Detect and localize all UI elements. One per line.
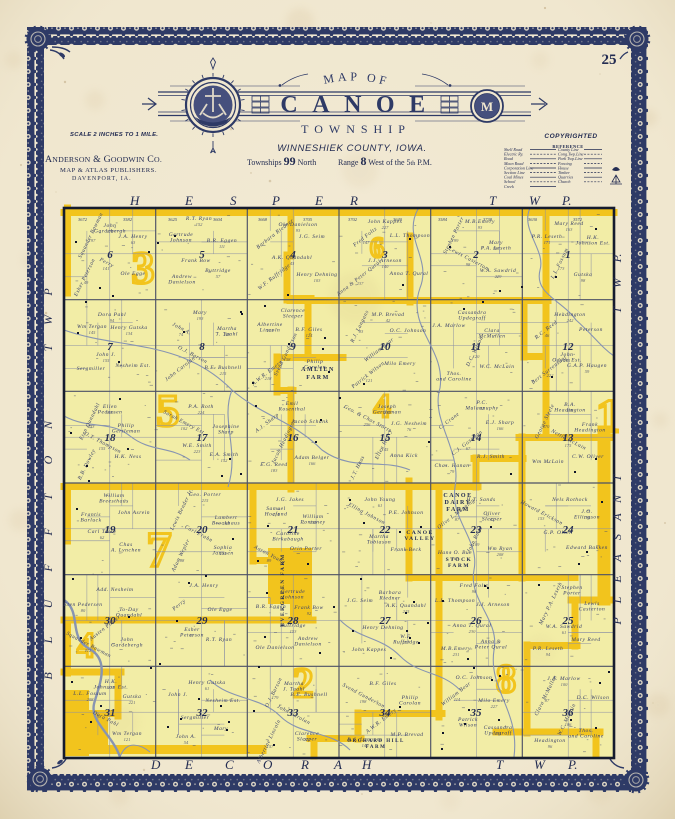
svg-text:141: 141 [103,266,110,271]
svg-text:E: E [610,575,624,584]
svg-text:Wm Ryan: Wm Ryan [488,546,513,552]
svg-text:Hans O. Bue: Hans O. Bue [437,550,472,556]
svg-text:P.E. Johnson: P.E. Johnson [387,510,423,516]
svg-text:43: 43 [290,261,295,266]
svg-text:80: 80 [81,608,86,613]
svg-text:O: O [263,757,273,772]
svg-text:L: L [41,636,55,644]
svg-text:ANDERSON & GOODWIN CO.: ANDERSON & GOODWIN CO. [45,154,162,165]
svg-text:B.E. Bushnell: B.E. Bushnell [204,365,241,371]
svg-text:49: 49 [84,280,89,285]
svg-text:166: 166 [497,426,505,431]
svg-text:Jacob Schank: Jacob Schank [292,419,329,425]
svg-text:179: 179 [272,695,280,700]
svg-text:S: S [610,534,624,540]
svg-text:102: 102 [181,426,189,431]
svg-text:152: 152 [221,458,229,463]
svg-text:Ole Egge: Ole Egge [120,271,145,277]
svg-text:G.A.P. Haugen: G.A.P. Haugen [567,363,607,369]
svg-text:61: 61 [205,686,210,691]
svg-text:Frank Bow: Frank Bow [293,605,324,611]
svg-text:W: W [610,277,624,288]
svg-text:Peterson: Peterson [578,327,603,333]
svg-text:Chas. Hanan: Chas. Hanan [434,463,469,469]
svg-text:L: L [610,596,624,604]
svg-text:203: 203 [267,328,275,333]
svg-text:S: S [230,193,237,208]
svg-text:218: 218 [265,376,273,381]
svg-text:SCALE 2 INCHES TO 1 MILE.: SCALE 2 INCHES TO 1 MILE. [70,132,158,138]
svg-text:Wm Tergan: Wm Tergan [77,324,107,330]
svg-text:A.K. Quandahl: A.K. Quandahl [385,603,426,609]
svg-text:3: 3 [132,242,155,293]
svg-text:175: 175 [565,443,573,448]
svg-text:79: 79 [450,469,455,474]
svg-text:W: W [41,314,55,325]
svg-text:230: 230 [469,629,477,634]
svg-text:136: 136 [584,515,592,520]
svg-text:221: 221 [129,700,136,705]
svg-text:103: 103 [314,278,322,283]
svg-text:O.C. Johnson: O.C. Johnson [456,675,493,681]
svg-text:Anna T. Qural: Anna T. Qural [389,271,429,277]
svg-text:111: 111 [219,244,225,249]
svg-text:CANOE: CANOE [443,493,472,499]
svg-text:U: U [41,598,55,608]
svg-text:8: 8 [496,656,516,701]
svg-text:214: 214 [273,512,281,517]
svg-text:231: 231 [453,652,460,657]
svg-text:89: 89 [267,558,272,563]
svg-text:Buttridge: Buttridge [205,268,231,274]
svg-text:227: 227 [382,225,390,230]
svg-text:John J.: John J. [96,352,116,358]
svg-text:G.P. Olsen: G.P. Olsen [543,530,572,536]
svg-text:223: 223 [194,449,202,454]
svg-text:173: 173 [558,266,566,271]
svg-text:CassandraUpdegraff: CassandraUpdegraff [458,310,487,322]
svg-text:29: 29 [196,615,209,627]
svg-text:215: 215 [202,498,210,503]
svg-text:193: 193 [197,316,205,321]
svg-text:D.C. Wilson: D.C. Wilson [576,695,610,701]
svg-text:WilliamBreesthaus: WilliamBreesthaus [99,493,129,505]
svg-text:228: 228 [224,332,232,337]
svg-text:VALLEY: VALLEY [404,536,435,542]
svg-text:57: 57 [216,274,221,279]
svg-text:T: T [496,757,504,772]
svg-text:WINNESHIEK COUNTY, IOWA.: WINNESHIEK COUNTY, IOWA. [277,143,427,154]
svg-text:P: P [271,193,280,208]
svg-text:Geo. Porter: Geo. Porter [189,492,222,498]
svg-text:P: P [41,288,55,297]
svg-text:54: 54 [184,740,189,745]
svg-text:198: 198 [567,408,575,413]
svg-text:Ole Danielson: Ole Danielson [255,645,294,651]
svg-text:153: 153 [290,629,298,634]
svg-text:CANOE: CANOE [280,92,439,118]
svg-text:Dora Pahl: Dora Pahl [97,312,126,318]
svg-text:62: 62 [100,535,105,540]
svg-text:199: 199 [452,238,460,243]
svg-text:C: C [225,757,234,772]
svg-text:M: M [481,99,493,114]
svg-text:121: 121 [366,378,373,383]
svg-text:Mary: Mary [213,726,228,732]
svg-text:208: 208 [497,552,505,557]
svg-text:Carl Teske: Carl Teske [88,529,117,535]
svg-text:Nesheim Est.: Nesheim Est. [204,698,240,704]
svg-text:FARM: FARM [448,563,470,569]
svg-text:R.T. Ryan: R.T. Ryan [205,637,232,643]
svg-text:Gutska: Gutska [574,272,593,278]
svg-text:J.A. Marlow: J.A. Marlow [432,323,465,329]
svg-text:GertrudeJohnson: GertrudeJohnson [169,232,194,244]
svg-text:John Young: John Young [364,497,395,503]
svg-text:H: H [129,193,140,208]
svg-text:J.J. Arneson: J.J. Arneson [476,602,510,608]
svg-text:46: 46 [545,333,550,338]
svg-text:W.C. McLain: W.C. McLain [479,364,514,370]
svg-text:198: 198 [360,699,368,704]
svg-text:R.J. Smith: R.J. Smith [476,454,505,460]
svg-text:114: 114 [454,697,461,702]
svg-text:EVERGREEN FARM: EVERGREEN FARM [280,553,286,626]
svg-text:DAIRY: DAIRY [445,500,472,506]
svg-text:145: 145 [382,447,390,452]
svg-text:183: 183 [271,468,279,473]
svg-text:Headington: Headington [553,312,585,318]
svg-text:207: 207 [403,640,411,645]
svg-text:83: 83 [359,329,364,334]
svg-text:187: 187 [493,246,501,251]
svg-text:100: 100 [561,682,569,687]
svg-text:224: 224 [198,410,206,415]
svg-text:3640: 3640 [393,217,403,222]
svg-text:P: P [610,617,624,626]
svg-text:B: B [41,672,55,680]
svg-text:3630: 3630 [528,217,538,222]
svg-text:88: 88 [180,558,185,563]
svg-text:F: F [41,564,55,573]
svg-text:ClarenceSleeper: ClarenceSleeper [281,308,305,320]
svg-text:Nels Rothock: Nels Rothock [551,497,588,503]
svg-text:3625: 3625 [168,217,178,222]
svg-text:FARM: FARM [366,745,387,750]
svg-text:O: O [41,455,55,464]
svg-text:E: E [314,193,323,208]
svg-text:H.K. Ness: H.K. Ness [113,454,141,460]
svg-text:158: 158 [284,357,292,362]
svg-text:3582: 3582 [123,217,133,222]
svg-text:DAVENPORT, IA.: DAVENPORT, IA. [72,176,132,182]
svg-text:Sergmiller: Sergmiller [77,366,106,372]
svg-text:25: 25 [602,52,617,68]
svg-text:155: 155 [103,358,111,363]
svg-text:Henry Gutska: Henry Gutska [109,325,147,331]
svg-text:61: 61 [562,630,567,635]
svg-text:92: 92 [307,611,312,616]
svg-text:W.E. Smith: W.E. Smith [182,443,212,449]
svg-text:J.A. Henry: J.A. Henry [189,583,218,589]
svg-text:7: 7 [107,341,113,353]
svg-text:Church: Church [558,179,570,184]
svg-text:61: 61 [378,503,383,508]
svg-text:215: 215 [220,371,228,376]
svg-text:A: A [333,757,342,772]
svg-text:J.G. Seim: J.G. Seim [299,234,325,240]
svg-text:John J.: John J. [168,692,188,698]
svg-text:O.C. Johnson: O.C. Johnson [390,328,427,334]
svg-text:67: 67 [466,446,471,451]
svg-text:76: 76 [407,427,412,432]
svg-text:166: 166 [309,461,317,466]
svg-text:Add. Nesheim: Add. Nesheim [95,587,133,593]
svg-text:N: N [610,494,624,504]
svg-text:A.K. Quandahl: A.K. Quandahl [271,255,312,261]
svg-text:94: 94 [110,318,115,323]
svg-text:L.L. Fossum: L.L. Fossum [72,691,106,697]
svg-text:Milo Emery: Milo Emery [477,698,510,704]
svg-text:J.G. Seim: J.G. Seim [347,598,373,604]
svg-text:6: 6 [107,249,113,261]
svg-text:42: 42 [490,517,495,522]
svg-text:P.A. Roth: P.A. Roth [187,404,213,410]
svg-text:229: 229 [495,274,503,279]
svg-text:W: W [529,193,541,208]
svg-text:B.F. Giles: B.F. Giles [369,681,396,687]
svg-text:96: 96 [472,589,477,594]
svg-text:Mary Reed: Mary Reed [570,637,600,643]
svg-text:Mary: Mary [192,310,207,316]
svg-text:82: 82 [480,406,485,411]
svg-text:145: 145 [89,330,97,335]
svg-text:John Kappes: John Kappes [352,647,387,653]
svg-text:E: E [184,193,193,208]
svg-text:M.P. Brevad: M.P. Brevad [389,732,423,738]
svg-text:P.: P. [610,254,624,264]
svg-text:227: 227 [491,704,499,709]
svg-text:PatrickWilson: PatrickWilson [457,717,478,729]
svg-text:P.: P. [567,757,578,772]
svg-text:W.A. Sawdrid: W.A. Sawdrid [480,268,517,274]
svg-text:3738: 3738 [483,217,493,222]
svg-text:Edward Bakken: Edward Bakken [565,545,608,551]
svg-text:Sergmiller: Sergmiller [181,715,210,721]
svg-text:B.E. Bushnell: B.E. Bushnell [290,692,327,698]
svg-text:170: 170 [543,424,551,429]
svg-text:FARM: FARM [306,375,330,381]
svg-text:Gutska: Gutska [123,694,142,700]
svg-text:D: D [150,757,161,772]
svg-text:B.F. Giles: B.F. Giles [295,327,322,333]
svg-text:TOWNSHIP: TOWNSHIP [301,122,411,136]
svg-text:255: 255 [384,410,392,415]
svg-text:AndrewDanielson: AndrewDanielson [167,274,196,286]
svg-text:170: 170 [107,229,115,234]
svg-text:87: 87 [455,517,460,522]
svg-text:Henry Dehning: Henry Dehning [361,625,403,631]
svg-text:L.L. Thompson: L.L. Thompson [434,598,475,604]
svg-text:Headington: Headington [533,738,565,744]
svg-text:163: 163 [566,227,574,232]
svg-text:120: 120 [473,354,481,359]
svg-text:140: 140 [382,264,390,269]
svg-text:ORCHARD HILL: ORCHARD HILL [347,739,405,744]
svg-text:P.: P. [561,193,572,208]
svg-text:Wm McLain: Wm McLain [532,459,564,465]
svg-text:152: 152 [196,222,204,227]
svg-text:Henry Dehning: Henry Dehning [295,272,337,278]
svg-text:Anna Kick: Anna Kick [389,453,418,459]
svg-text:W: W [534,757,546,772]
svg-text:169: 169 [223,521,231,526]
svg-text:R: R [349,193,358,208]
svg-text:42: 42 [386,318,391,323]
svg-text:Creek: Creek [504,184,514,189]
svg-text:E.J. Sharp: E.J. Sharp [485,420,515,426]
svg-text:F: F [41,528,55,537]
svg-text:242: 242 [567,318,575,323]
svg-text:109: 109 [107,410,115,415]
svg-text:MarthaJ. Taahl: MarthaJ. Taahl [283,681,305,693]
svg-text:N: N [41,420,55,430]
svg-text:Milo Emery: Milo Emery [383,361,416,367]
svg-text:97: 97 [190,633,195,638]
svg-text:109: 109 [473,542,481,547]
svg-text:244: 244 [495,731,503,736]
svg-text:3584: 3584 [438,217,448,222]
svg-text:MAP & ATLAS PUBLISHERS.: MAP & ATLAS PUBLISHERS. [60,167,157,174]
svg-text:John Asrein: John Asrein [118,510,150,516]
svg-text:98: 98 [581,278,586,283]
svg-text:96: 96 [548,744,553,749]
svg-text:StephenPorter: StephenPorter [561,585,582,597]
svg-text:AndrewDanielson: AndrewDanielson [293,636,322,648]
svg-text:J.A. Henry: J.A. Henry [118,234,147,240]
svg-text:3672: 3672 [78,217,88,222]
svg-text:Henry Gutska: Henry Gutska [187,680,225,686]
svg-text:235: 235 [220,551,228,556]
svg-text:87: 87 [545,698,550,703]
svg-text:MarthaTobiason: MarthaTobiason [367,534,391,546]
svg-text:59: 59 [585,369,590,374]
svg-text:M.B.Emery: M.B.Emery [440,646,471,652]
svg-text:Adam Belger: Adam Belger [294,455,330,461]
svg-text:155: 155 [99,446,107,451]
svg-text:256: 256 [364,422,372,427]
svg-text:C.W. Oliver: C.W. Oliver [572,454,604,460]
svg-text:Frank Bow: Frank Bow [180,258,211,264]
svg-text:FrantisBarluck: FrantisBarluck [80,512,102,524]
svg-text:H: H [361,757,372,772]
svg-text:3572: 3572 [573,217,583,222]
svg-text:3702: 3702 [348,217,358,222]
svg-text:153: 153 [538,516,546,521]
svg-text:98: 98 [466,262,471,267]
svg-text:Nesheim Est.: Nesheim Est. [114,363,150,369]
svg-text:John A.: John A. [176,734,197,740]
svg-text:FARM: FARM [446,507,470,513]
svg-text:171: 171 [544,240,551,245]
svg-text:3604: 3604 [213,217,223,222]
svg-text:Orin Porter: Orin Porter [290,546,322,552]
svg-text:T: T [489,193,497,208]
svg-text:3705: 3705 [303,217,313,222]
svg-text:B.R. Eggen: B.R. Eggen [207,238,237,244]
svg-text:134: 134 [126,331,134,336]
svg-text:3668: 3668 [258,217,268,222]
svg-text:1: 1 [596,390,620,443]
svg-text:CarolineBirkabaugh: CarolineBirkabaugh [272,531,303,543]
svg-text:235: 235 [108,685,116,690]
svg-text:P.R. Leseth: P.R. Leseth [531,234,563,240]
svg-text:A: A [610,554,624,563]
svg-text:J.G. Nesheim: J.G. Nesheim [391,421,427,427]
svg-text:147: 147 [363,240,371,245]
svg-text:Anna T. Qural: Anna T. Qural [452,623,492,629]
svg-text:W.A. Sawdrid: W.A. Sawdrid [546,624,583,630]
svg-text:BarbaraRiedner: BarbaraRiedner [378,590,401,602]
svg-text:8: 8 [199,341,205,353]
svg-text:233: 233 [88,424,96,429]
svg-text:R: R [300,757,309,772]
svg-text:208: 208 [87,697,95,702]
svg-text:Eten Pedersen: Eten Pedersen [62,602,102,608]
svg-text:197: 197 [89,238,97,243]
svg-text:222: 222 [304,737,312,742]
svg-text:63: 63 [131,240,136,245]
svg-text:7: 7 [147,521,172,577]
svg-text:PhilipCarolan: PhilipCarolan [399,695,421,707]
svg-text:93: 93 [296,228,301,233]
svg-text:E.A. Smith: E.A. Smith [209,452,239,458]
svg-text:COPYRIGHTED: COPYRIGHTED [544,133,597,140]
svg-text:J.G. Jakes: J.G. Jakes [276,497,304,503]
svg-text:R.T. Ryan: R.T. Ryan [185,216,212,222]
svg-text:12: 12 [563,341,575,353]
svg-text:159: 159 [310,520,318,525]
svg-text:Ole Egge: Ole Egge [207,607,232,613]
svg-text:E: E [184,757,193,772]
svg-text:93: 93 [478,225,483,230]
svg-text:A: A [610,513,624,522]
